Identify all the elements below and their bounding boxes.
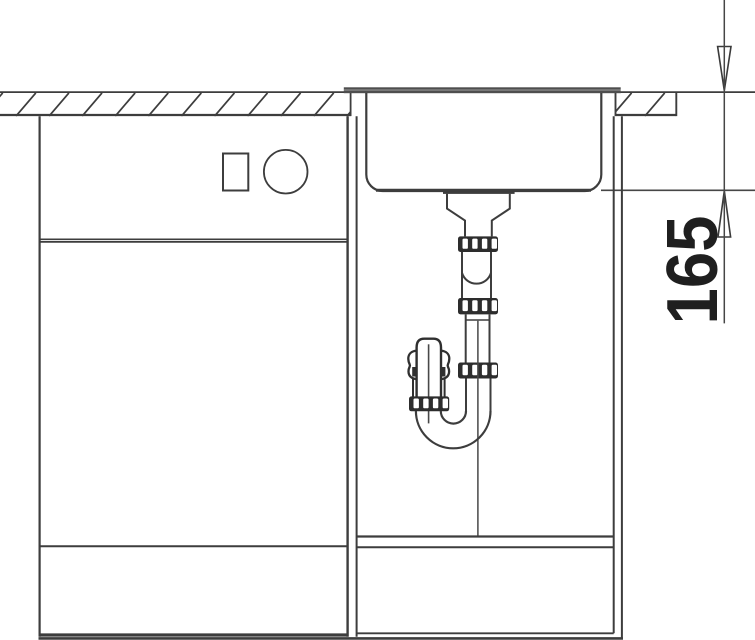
svg-text:165: 165 [653, 216, 733, 325]
